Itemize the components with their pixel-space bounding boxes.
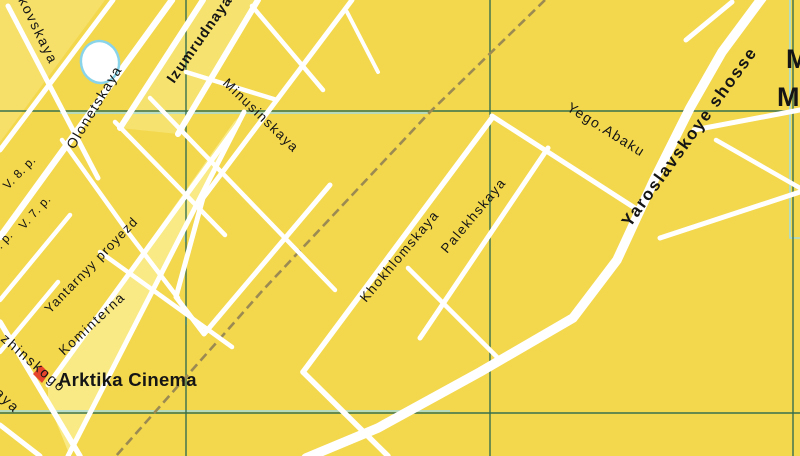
map-canvas[interactable]: kovskayaOlonetskayaV. 8. p.V. 7. p.V. 6.… (0, 0, 800, 456)
label-region-line2: M (777, 82, 800, 112)
map-root: kovskayaOlonetskayaV. 8. p.V. 7. p.V. 6.… (0, 0, 800, 456)
label-arktika-cinema: Arktika Cinema (58, 369, 197, 390)
label-region-line1: M (786, 44, 800, 74)
